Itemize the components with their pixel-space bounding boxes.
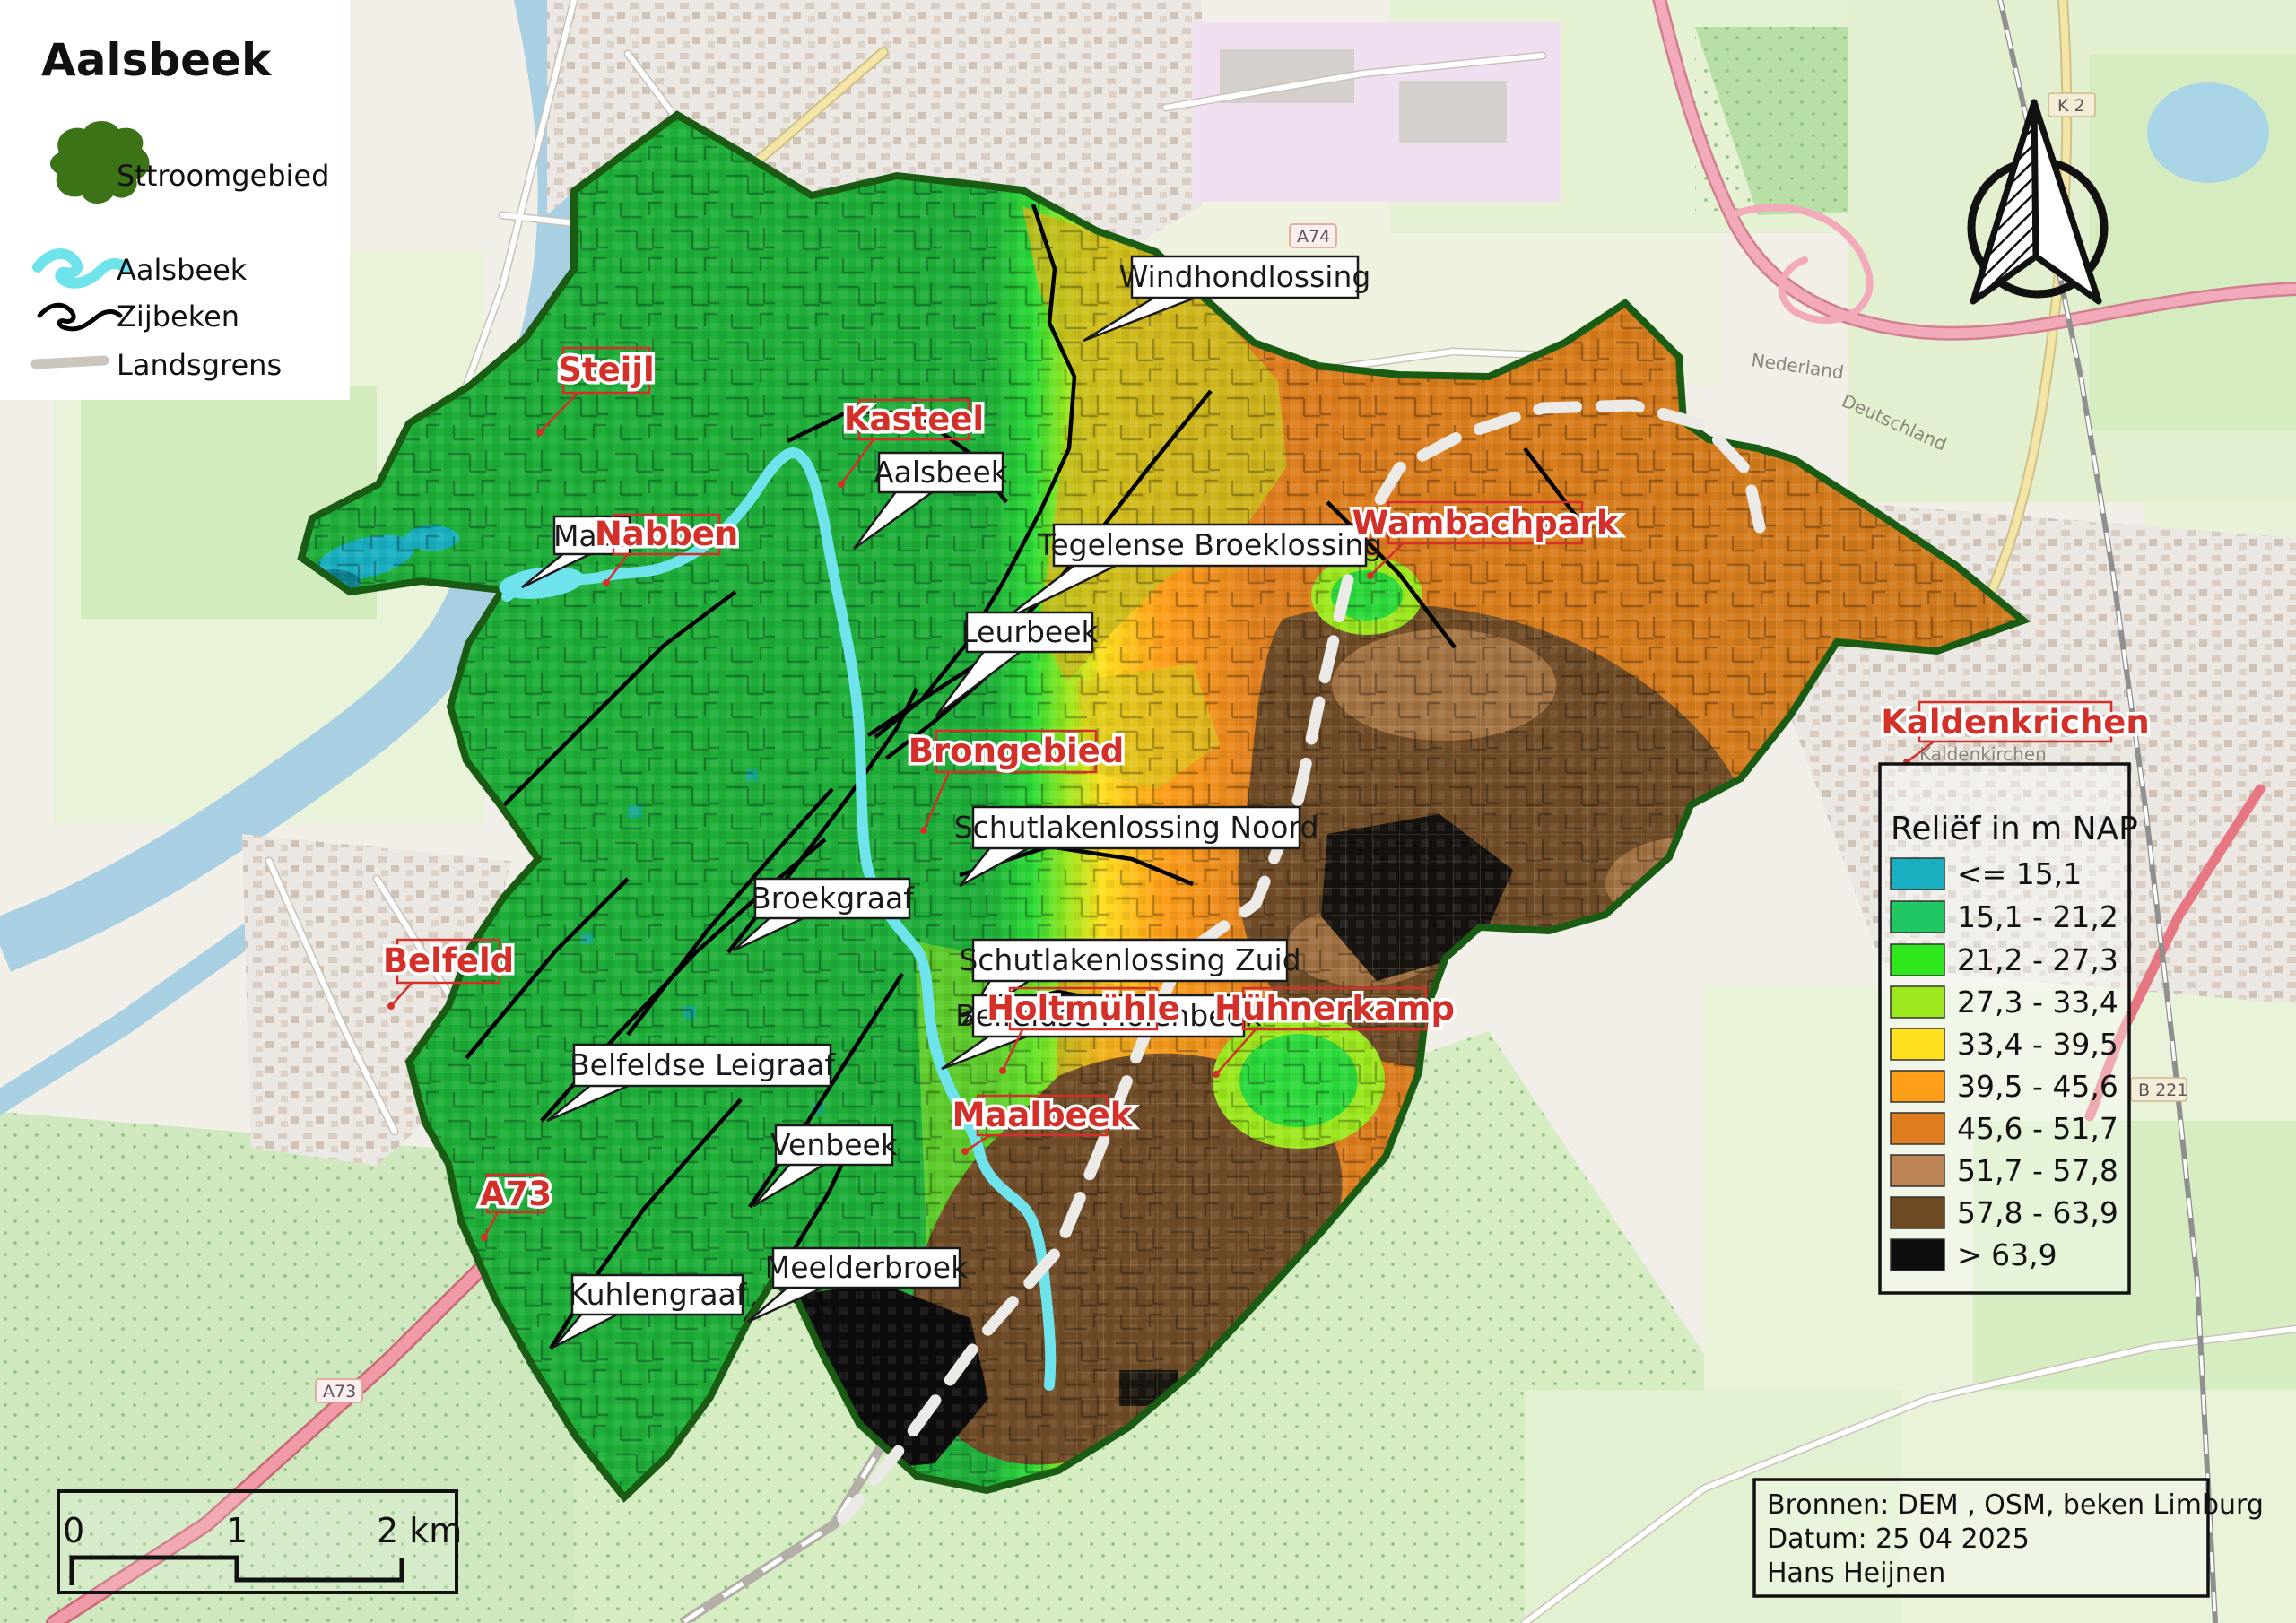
svg-text:51,7 - 57,8: 51,7 - 57,8 <box>1957 1153 2118 1188</box>
svg-text:A74: A74 <box>1297 227 1330 247</box>
legend-swatch-landsgrens <box>36 360 104 364</box>
svg-text:27,3 - 33,4: 27,3 - 33,4 <box>1957 985 2118 1020</box>
place-kaldenkrichen: Kaldenkrichen <box>1881 703 2150 742</box>
label-windhondlossing: Windhondlossing <box>1119 259 1371 294</box>
legend-label-landsgrens: Landsgrens <box>117 348 282 382</box>
legend-label-stroomgebied: Sttroomgebied <box>117 159 329 193</box>
label-broekgraaf: Broekgraaf <box>751 881 915 916</box>
label-tegelense-broeklossing: Tegelense Broeklossing <box>1037 527 1382 562</box>
scalebar-zero: 0 <box>63 1511 84 1550</box>
svg-text:A73: A73 <box>323 1382 356 1402</box>
place-holtmuhle: Holtmühle <box>987 989 1180 1028</box>
place-nabben: Nabben <box>595 515 738 553</box>
svg-text:B 221: B 221 <box>2138 1081 2187 1100</box>
place-wambachpark: Wambachpark <box>1352 504 1619 542</box>
credits-author: Hans Heijnen <box>1767 1558 1945 1589</box>
place-maalbeek: Maalbeek <box>952 1096 1134 1134</box>
svg-text:> 63,9: > 63,9 <box>1957 1237 2057 1272</box>
pond <box>2147 82 2269 183</box>
place-steijl: Steijl <box>558 351 654 389</box>
place-brongebied: Brongebied <box>909 732 1125 770</box>
svg-text:15,1 - 21,2: 15,1 - 21,2 <box>1957 899 2118 934</box>
svg-text:33,4 - 39,5: 33,4 - 39,5 <box>1957 1027 2118 1062</box>
credits-box: Bronnen: DEM , OSM, beken Limburg Datum:… <box>1754 1480 2264 1596</box>
place-kasteel: Kasteel <box>844 400 984 438</box>
svg-text:<= 15,1: <= 15,1 <box>1957 856 2082 891</box>
svg-text:45,6 - 51,7: 45,6 - 51,7 <box>1957 1111 2118 1146</box>
credits-date: Datum: 25 04 2025 <box>1767 1523 2030 1555</box>
label-schutlakenlossing-noord: Schutlakenlossing Noord <box>954 810 1319 845</box>
legend-panel: Aalsbeek Sttroomgebied Aalsbeek Zijbeken… <box>0 0 350 400</box>
label-leurbeek: Leurbeek <box>961 614 1099 649</box>
svg-text:21,2 - 27,3: 21,2 - 27,3 <box>1957 942 2118 977</box>
scalebar: 0 1 2 km <box>58 1491 462 1593</box>
osm-label-kaldenkirchen: Kaldenkirchen <box>1919 743 2047 765</box>
map-title: Aalsbeek <box>41 34 273 86</box>
relief-legend-title: Reliëf in m NAP <box>1891 811 2138 847</box>
map-svg: Kaldenkirchen Nederland Deutschland A74 … <box>0 0 2296 1623</box>
legend-label-aalsbeek: Aalsbeek <box>117 253 248 287</box>
shield-k2: K 2 <box>2048 93 2095 117</box>
scalebar-one: 1 <box>226 1511 248 1550</box>
svg-text:39,5 - 45,6: 39,5 - 45,6 <box>1957 1069 2118 1104</box>
legend-label-zijbeken: Zijbeken <box>117 299 239 334</box>
credits-sources: Bronnen: DEM , OSM, beken Limburg <box>1767 1489 2264 1521</box>
label-schutlakenlossing-zuid: Schutlakenlossing Zuid <box>959 942 1300 977</box>
label-aalsbeek-stream: Aalsbeek <box>874 455 1009 490</box>
label-belfeldse-leigraaf: Belfeldse Leigraaf <box>570 1047 836 1082</box>
svg-text:K 2: K 2 <box>2057 96 2085 116</box>
label-venbeek: Venbeek <box>770 1127 899 1162</box>
place-huhnerkamp: Hühnerkamp <box>1214 989 1455 1028</box>
shield-a73: A73 <box>316 1379 362 1402</box>
shield-a74: A74 <box>1290 224 1336 247</box>
place-belfeld: Belfeld <box>383 942 514 980</box>
place-a73: A73 <box>480 1175 552 1213</box>
label-kuhlengraaf: Kuhlengraaf <box>569 1277 748 1312</box>
svg-text:57,8 - 63,9: 57,8 - 63,9 <box>1957 1195 2118 1230</box>
map-export-canvas: Kaldenkirchen Nederland Deutschland A74 … <box>0 0 2296 1623</box>
relief-legend: Reliëf in m NAP <= 15,1 15,1 - 21,2 21,2… <box>1880 764 2138 1293</box>
scalebar-two: 2 km <box>377 1511 462 1550</box>
label-meelderbroek: Meelderbroek <box>765 1250 969 1285</box>
shield-b221: B 221 <box>2131 1078 2187 1101</box>
